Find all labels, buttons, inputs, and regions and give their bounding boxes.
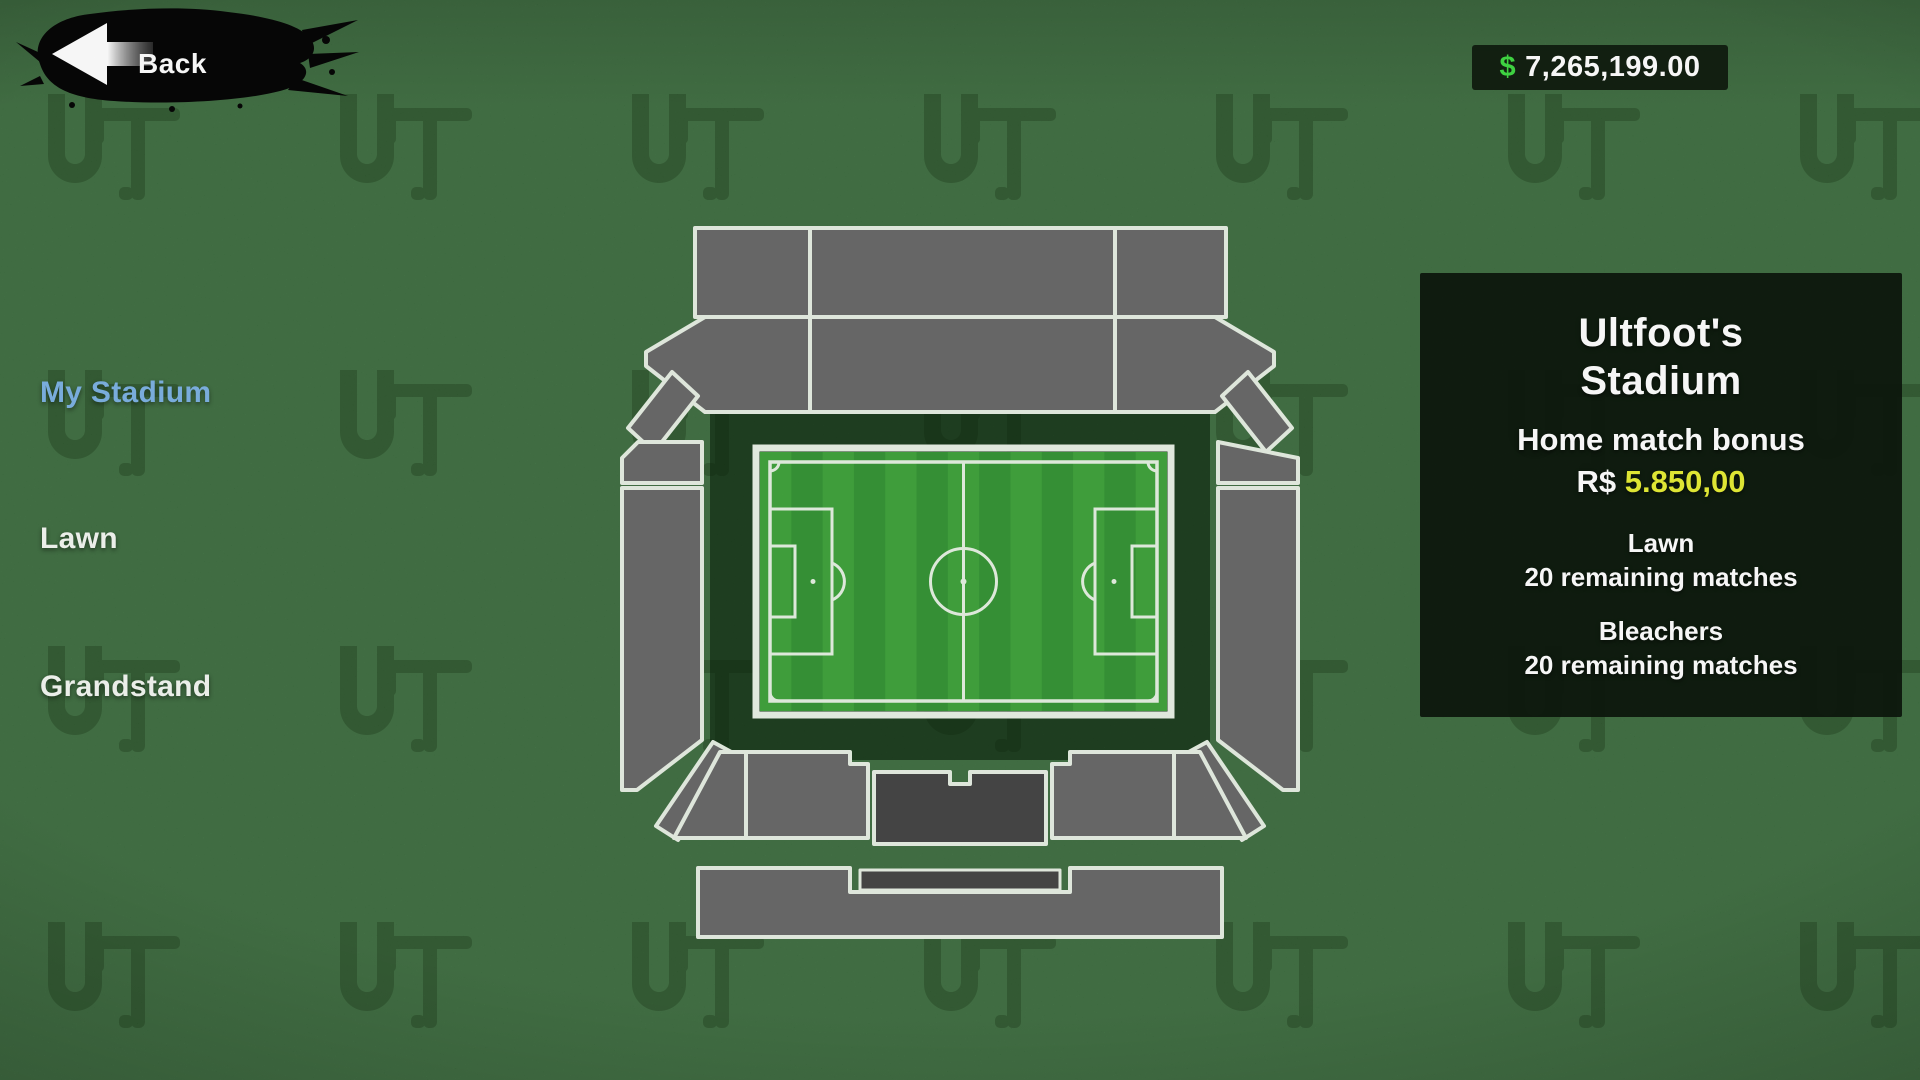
bleachers-section-status: 20 remaining matches bbox=[1420, 649, 1902, 681]
sidebar-item-grandstand[interactable]: Grandstand bbox=[40, 670, 211, 704]
stadium-info-panel: Ultfoot's Stadium Home match bonus R$ 5.… bbox=[1420, 273, 1902, 717]
balance-amount: 7,265,199.00 bbox=[1525, 51, 1700, 84]
stadium-name: Ultfoot's Stadium bbox=[1420, 309, 1902, 405]
lawn-section-name: Lawn bbox=[1420, 527, 1902, 559]
currency-dollar-icon: $ bbox=[1500, 51, 1517, 84]
stand-north-lower[interactable] bbox=[646, 317, 1274, 412]
back-button[interactable]: Back bbox=[10, 2, 360, 120]
balance-display: $ 7,265,199.00 bbox=[1472, 45, 1728, 90]
home-match-bonus-value: R$ 5.850,00 bbox=[1420, 463, 1902, 501]
bonus-currency: R$ bbox=[1577, 464, 1617, 499]
bleachers-section-name: Bleachers bbox=[1420, 615, 1902, 647]
stand-north-upper[interactable] bbox=[695, 228, 1226, 317]
players-tunnel-block[interactable] bbox=[874, 772, 1046, 844]
stadium-map bbox=[610, 180, 1310, 970]
corner-stand-northeast[interactable] bbox=[1222, 372, 1292, 452]
bonus-amount: 5.850,00 bbox=[1625, 464, 1746, 499]
sidebar-item-my-stadium[interactable]: My Stadium bbox=[40, 376, 211, 410]
pitch[interactable] bbox=[756, 448, 1171, 715]
stand-south-outer[interactable] bbox=[698, 868, 1222, 937]
lawn-section-status: 20 remaining matches bbox=[1420, 561, 1902, 593]
sidebar-item-lawn[interactable]: Lawn bbox=[40, 522, 118, 556]
back-button-label[interactable]: Back bbox=[138, 48, 207, 80]
stand-east[interactable] bbox=[1218, 442, 1298, 790]
home-match-bonus-label: Home match bonus bbox=[1420, 421, 1902, 459]
stand-west[interactable] bbox=[622, 442, 702, 790]
